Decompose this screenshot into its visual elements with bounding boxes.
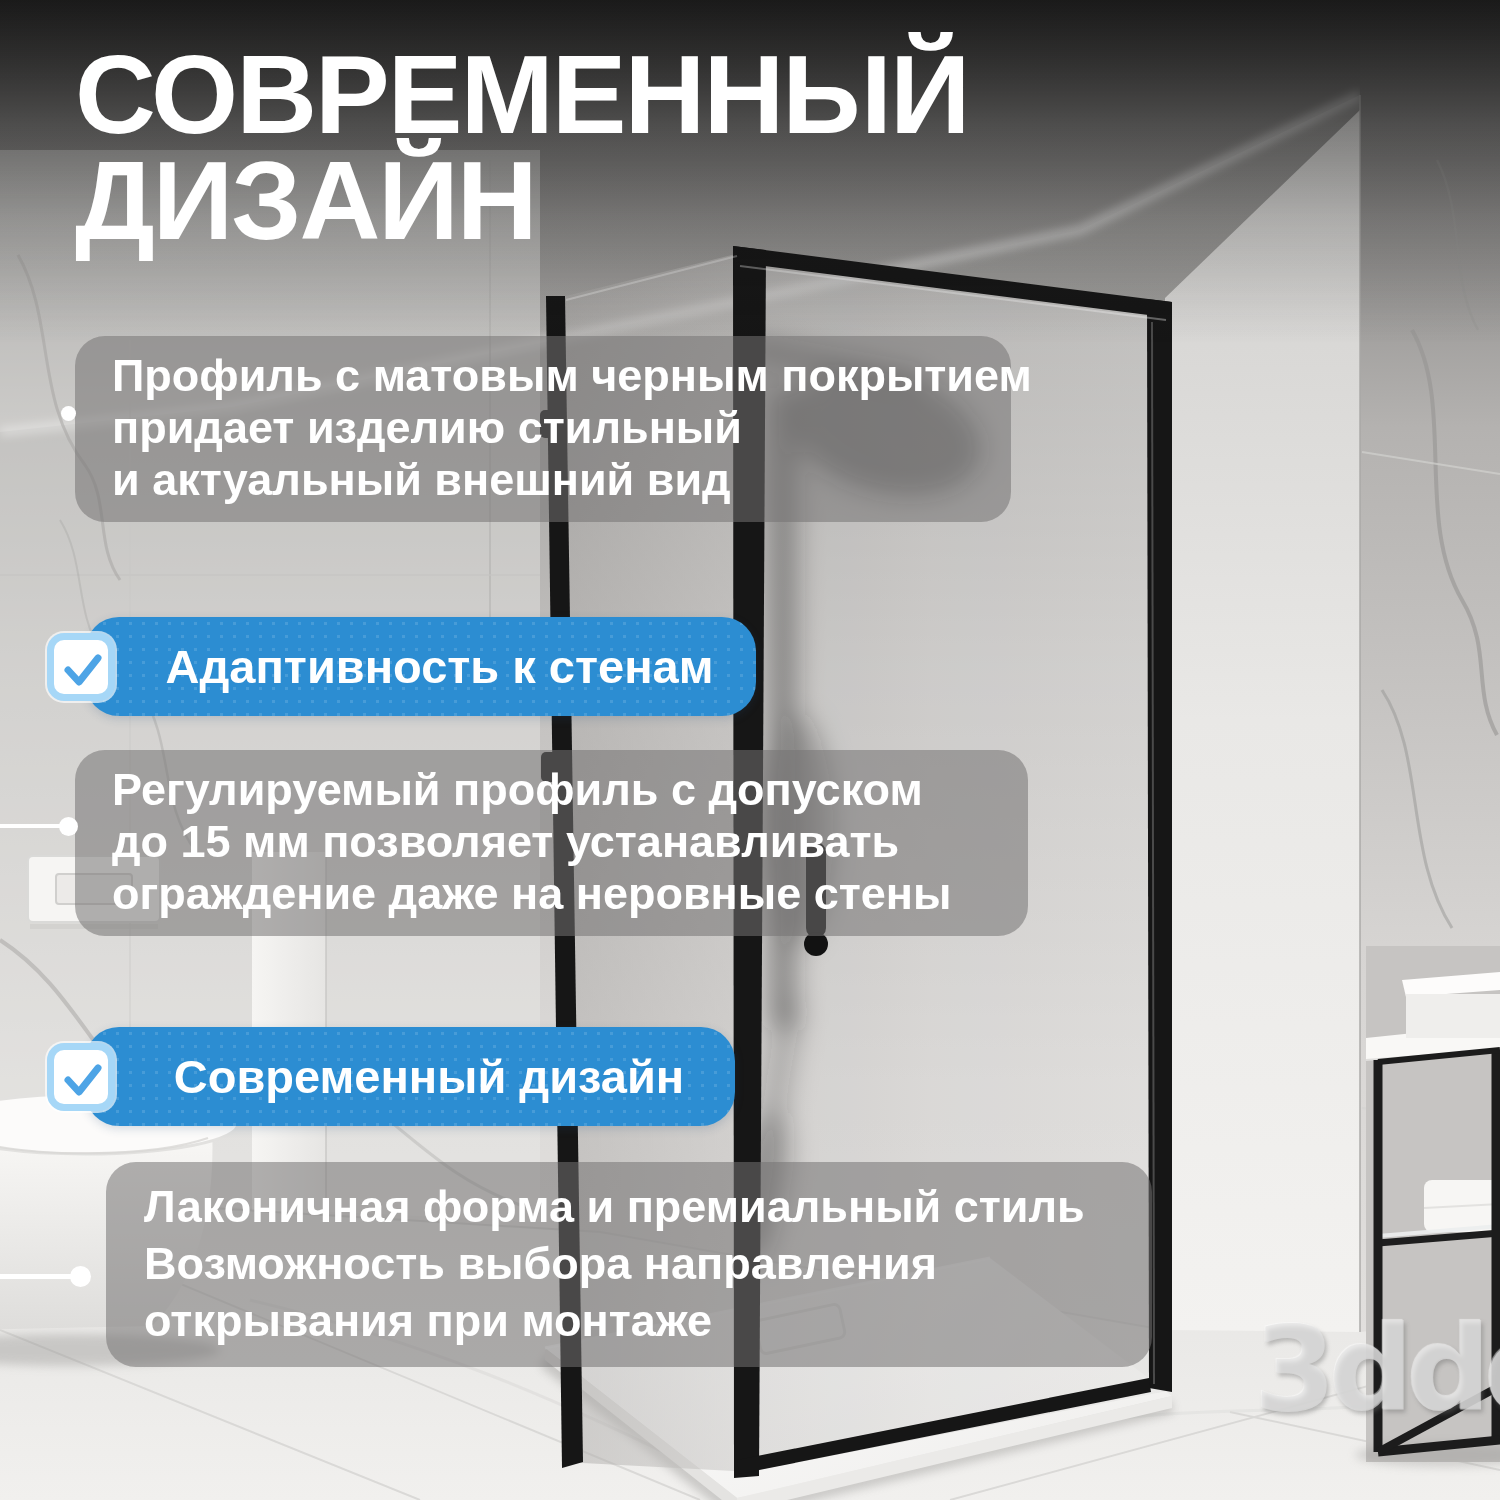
checkmark-icon (54, 1050, 108, 1104)
checkbox-checked (47, 633, 115, 701)
feature-card-2-line: до 15 мм позволяет устанавливать (112, 816, 998, 868)
pointer-line (0, 1274, 72, 1279)
pointer-line (0, 824, 60, 828)
watermark: 3ddd (1254, 1310, 1500, 1428)
bullet-dot (59, 817, 78, 836)
feature-card-2-line: ограждение даже на неровные стены (112, 868, 998, 920)
feature-card-1-line: придает изделию стильный (112, 402, 981, 454)
feature-card-2-line: Регулируемый профиль с допуском (112, 764, 998, 816)
page-title: СОВРЕМЕННЫЙ ДИЗАЙН (75, 42, 968, 254)
feature-card-3-line: Лаконичная форма и премиальный стиль (144, 1178, 1122, 1235)
feature-card-1-line: и актуальный внешний вид (112, 454, 981, 506)
feature-card-3: Лаконичная форма и премиальный стиль Воз… (106, 1162, 1152, 1367)
bullet-dot (61, 406, 76, 421)
product-infographic: 3ddd СОВРЕМЕННЫЙ ДИЗАЙН Профиль с матовы… (0, 0, 1500, 1500)
feature-badge-label: Современный дизайн (174, 1049, 684, 1104)
feature-card-3-line: Возможность выбора направления (144, 1235, 1122, 1292)
feature-card-3-line: открывания при монтаже (144, 1292, 1122, 1349)
feature-card-1-line: Профиль с матовым черным покрытием (112, 350, 981, 402)
bullet-dot (70, 1266, 91, 1287)
feature-badge-label: Адаптивность к стенам (166, 639, 714, 694)
feature-card-1: Профиль с матовым черным покрытием прида… (75, 336, 1011, 522)
feature-badge-modern-design: Современный дизайн (85, 1027, 735, 1126)
feature-badge-adaptivity: Адаптивность к стенам (85, 617, 756, 716)
title-line-2: ДИЗАЙН (75, 148, 968, 254)
checkbox-checked (47, 1043, 115, 1111)
title-line-1: СОВРЕМЕННЫЙ (75, 42, 968, 148)
checkmark-icon (54, 640, 108, 694)
feature-card-2: Регулируемый профиль с допуском до 15 мм… (75, 750, 1028, 936)
